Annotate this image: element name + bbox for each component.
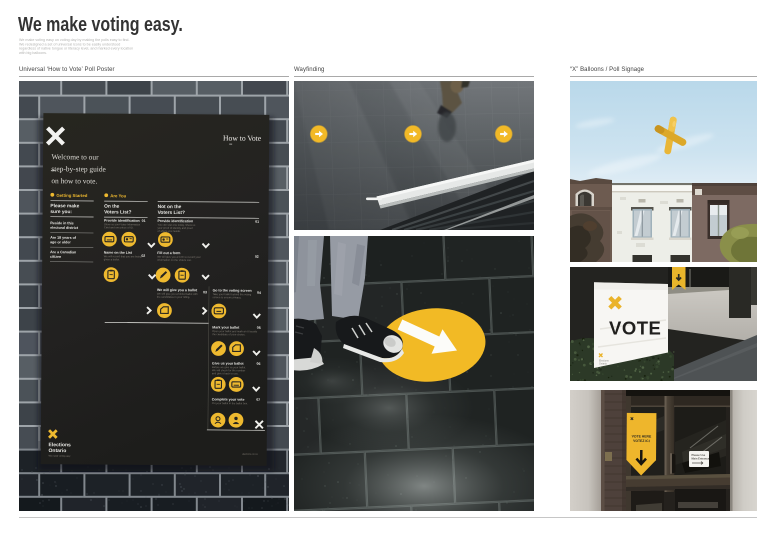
svg-text:02: 02: [255, 255, 259, 259]
svg-text:03: 03: [203, 290, 207, 294]
svg-text:Please make: Please make: [50, 203, 79, 209]
svg-text:04: 04: [257, 291, 261, 295]
svg-text:07: 07: [256, 398, 260, 402]
svg-text:Are You: Are You: [110, 193, 126, 198]
svg-text:Name on the List: Name on the List: [104, 251, 133, 255]
svg-text:sure you:: sure you:: [50, 209, 72, 215]
svg-text:Put your ballot in the ballot: Put your ballot in the ballot box.: [212, 401, 249, 405]
svg-text:step-by-step guide: step-by-step guide: [51, 164, 106, 173]
svg-text:Reside in this: Reside in this: [50, 221, 73, 225]
svg-text:Ontario: Ontario: [599, 362, 608, 365]
svg-text:Are 18 years of: Are 18 years of: [50, 236, 77, 240]
svg-text:of where you reside.: of where you reside.: [157, 229, 181, 233]
svg-text:Are a Canadian: Are a Canadian: [50, 250, 76, 254]
svg-text:On the: On the: [104, 204, 120, 210]
svg-text:the candidates in your riding.: the candidates in your riding.: [157, 295, 190, 299]
svg-text:Not on the: Not on the: [158, 204, 182, 210]
svg-text:age or older: age or older: [50, 240, 71, 244]
svg-text:screen to ensure privacy.: screen to ensure privacy.: [213, 295, 242, 299]
svg-text:Ontario: Ontario: [49, 448, 67, 454]
svg-text:Please Use: Please Use: [692, 453, 706, 457]
svg-text:citizen: citizen: [50, 255, 61, 259]
svg-text:Getting Started: Getting Started: [56, 193, 87, 198]
svg-text:02: 02: [141, 254, 145, 258]
svg-text:the candidate of your choice.: the candidate of your choice.: [212, 332, 245, 336]
svg-text:01: 01: [142, 219, 146, 223]
svg-text:Provide identification: Provide identification: [104, 219, 140, 223]
svg-text:VOTEZ ICI: VOTEZ ICI: [633, 439, 650, 443]
svg-text:elections.on.ca: elections.on.ca: [242, 453, 258, 456]
svg-text:electoral district: electoral district: [50, 226, 79, 230]
svg-text:05: 05: [257, 326, 261, 330]
svg-text:Welcome to our: Welcome to our: [52, 152, 100, 161]
svg-text:We make voting easy: We make voting easy: [48, 455, 71, 458]
svg-text:01: 01: [255, 220, 259, 224]
svg-text:Voters List?: Voters List?: [158, 210, 185, 216]
svg-text:Fill out a form: Fill out a form: [157, 251, 180, 255]
svg-text:Card and one piece of ID.: Card and one piece of ID.: [104, 225, 134, 229]
svg-text:VOTE: VOTE: [609, 318, 661, 339]
svg-text:Provide identification: Provide identification: [158, 219, 194, 223]
svg-text:information on the Voters List: information on the Voters List.: [157, 258, 192, 262]
svg-text:Mark your ballot: Mark your ballot: [212, 325, 240, 329]
svg-text:Give us your ballot: Give us your ballot: [212, 361, 244, 365]
svg-text:How to Vote: How to Vote: [223, 134, 262, 143]
svg-text:06: 06: [256, 362, 260, 366]
svg-text:Complete your vote: Complete your vote: [212, 397, 245, 401]
svg-text:Voters List?: Voters List?: [104, 209, 131, 215]
svg-text:Main Entrance: Main Entrance: [692, 457, 710, 461]
svg-text:given a ballot.: given a ballot.: [104, 257, 120, 261]
svg-text:on how to vote.: on how to vote.: [51, 176, 97, 185]
svg-text:and give it back to you.: and give it back to you.: [212, 371, 239, 375]
